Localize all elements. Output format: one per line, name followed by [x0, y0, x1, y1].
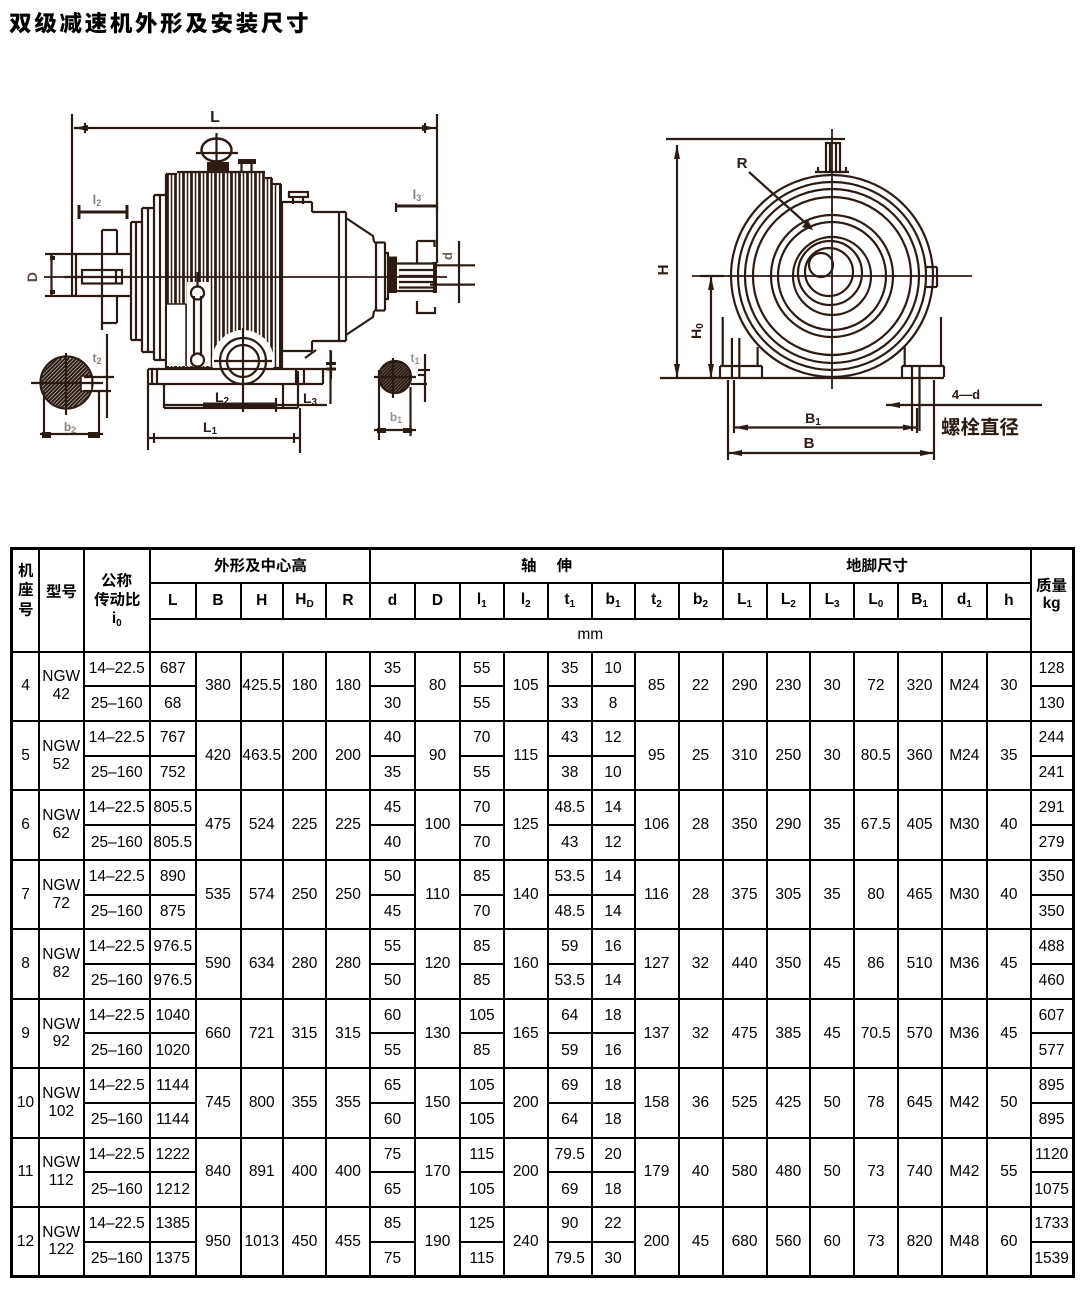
- svg-text:L1: L1: [203, 419, 218, 437]
- svg-text:D: D: [24, 272, 40, 282]
- svg-text:l2: l2: [93, 192, 102, 208]
- svg-text:L3: L3: [303, 390, 318, 408]
- svg-text:b2: b2: [64, 420, 76, 435]
- svg-text:t1: t1: [410, 351, 419, 366]
- svg-text:d: d: [440, 252, 455, 260]
- svg-text:L: L: [210, 109, 220, 126]
- svg-text:R: R: [737, 155, 748, 172]
- svg-text:H0: H0: [688, 323, 706, 339]
- svg-text:t2: t2: [92, 351, 101, 366]
- svg-text:l3: l3: [413, 187, 422, 203]
- svg-text:b1: b1: [390, 410, 402, 425]
- svg-text:B1: B1: [805, 410, 821, 428]
- svg-text:B: B: [804, 435, 815, 452]
- svg-text:L2: L2: [215, 389, 230, 407]
- svg-text:4—d: 4—d: [952, 387, 980, 402]
- svg-text:H: H: [655, 265, 672, 276]
